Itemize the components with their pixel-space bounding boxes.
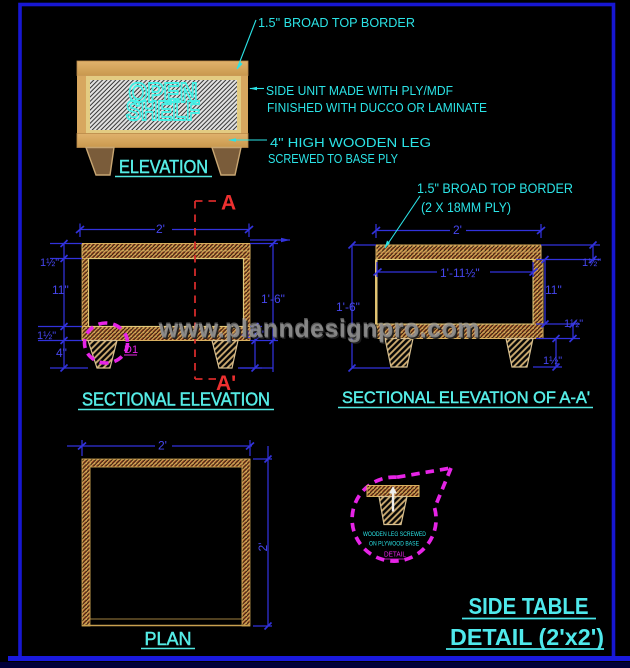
svg-text:PLAN: PLAN [145,628,192,649]
svg-text:4" HIGH WOODEN LEG: 4" HIGH WOODEN LEG [270,135,431,150]
svg-text:ON PLYWOOD BASE: ON PLYWOOD BASE [369,542,419,548]
svg-text:1'-6": 1'-6" [261,292,285,306]
svg-text:D1: D1 [124,344,138,356]
svg-text:1½": 1½" [564,318,583,330]
svg-text:1'-11½": 1'-11½" [440,266,480,280]
svg-text:11": 11" [52,283,69,297]
svg-text:DETAIL (2'x2'): DETAIL (2'x2') [450,624,604,650]
svg-text:11": 11" [545,283,562,297]
svg-text:4": 4" [56,346,67,360]
svg-text:1'-6": 1'-6" [336,300,360,314]
svg-text:FINISHED WITH DUCCO OR LAMINAT: FINISHED WITH DUCCO OR LAMINATE [267,100,487,115]
svg-text:2': 2' [156,222,165,236]
svg-text:SECTIONAL ELEVATION: SECTIONAL ELEVATION [82,390,270,410]
svg-text:1.5" BROAD TOP BORDER: 1.5" BROAD TOP BORDER [417,181,573,196]
svg-text:DETAIL: DETAIL [384,552,406,559]
svg-text:1½": 1½" [40,257,59,269]
svg-text:2': 2' [453,223,462,237]
svg-text:2': 2' [256,543,270,552]
svg-text:SECTIONAL ELEVATION OF A-A': SECTIONAL ELEVATION OF A-A' [342,388,590,407]
svg-text:1½": 1½" [582,257,601,269]
svg-text:SIDE TABLE: SIDE TABLE [469,593,589,619]
svg-text:ELEVATION: ELEVATION [119,157,208,177]
svg-text:(2 X 18MM PLY): (2 X 18MM PLY) [421,200,511,215]
svg-text:SIDE UNIT MADE WITH PLY/MDF: SIDE UNIT MADE WITH PLY/MDF [266,83,453,98]
svg-text:1.5" BROAD TOP BORDER: 1.5" BROAD TOP BORDER [258,15,415,30]
svg-text:SCREWED TO BASE PLY: SCREWED TO BASE PLY [268,151,398,166]
svg-text:1½": 1½" [543,355,562,367]
svg-text:SHELF: SHELF [126,95,200,126]
svg-text:WOODEN LEG SCREWED: WOODEN LEG SCREWED [363,532,427,538]
svg-text:www.planndesignpro.com: www.planndesignpro.com [158,316,480,344]
svg-text:A: A [221,192,236,215]
svg-text:2': 2' [158,439,167,453]
svg-text:1½": 1½" [37,330,56,342]
